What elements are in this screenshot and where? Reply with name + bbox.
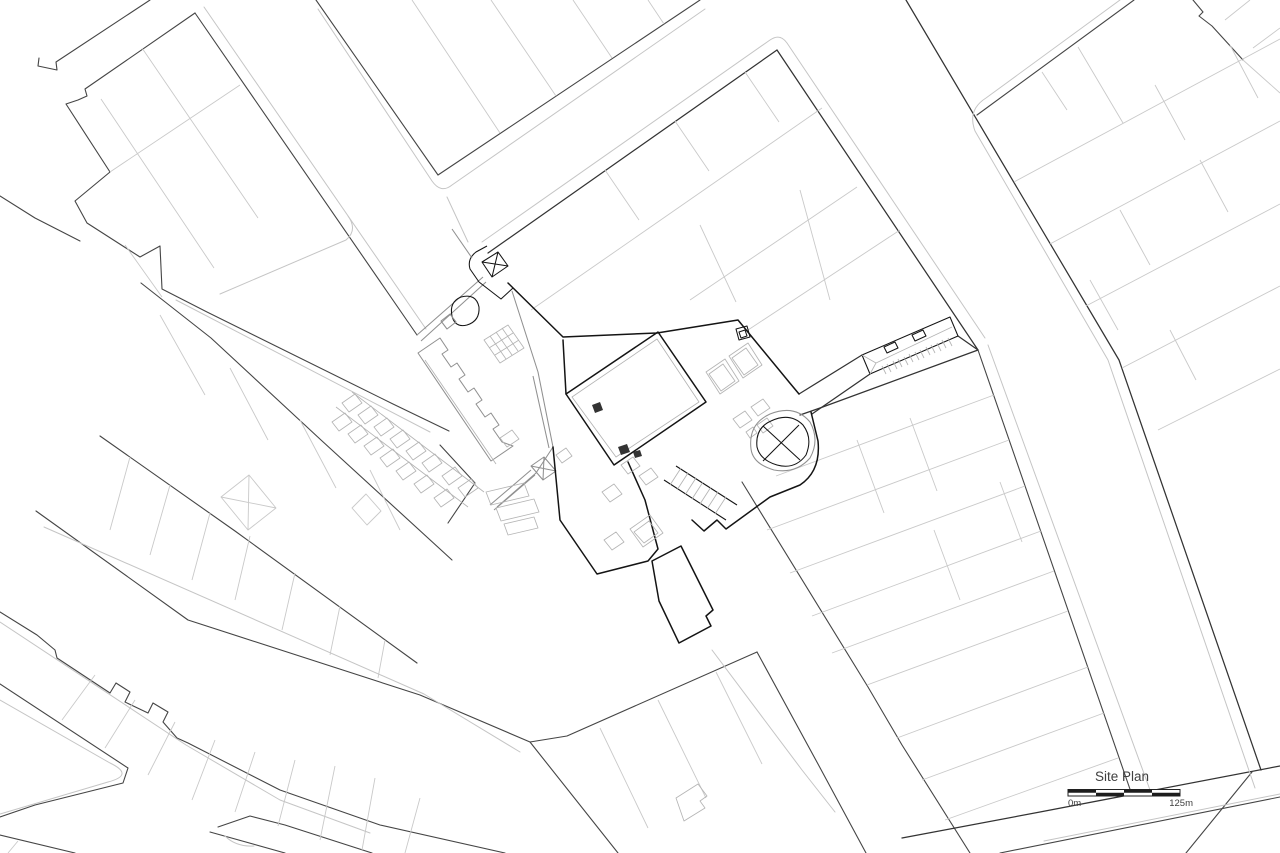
entrance-north-wall <box>452 229 472 258</box>
street-v-wedge <box>0 684 128 817</box>
small-rooflights <box>500 399 773 550</box>
block-b-lots <box>110 457 385 678</box>
roof-plant-units <box>592 402 642 458</box>
long-building-street-link <box>958 336 978 350</box>
courtyard-building-inner <box>425 360 496 464</box>
block-j-lots <box>600 672 762 828</box>
block-g-ne-edge <box>978 350 1132 795</box>
site-plan-page: Site Plan 0m 125m <box>0 0 1280 853</box>
lower-entrance-benches <box>486 483 539 535</box>
stair-steps <box>670 468 726 514</box>
long-roof-outline <box>862 317 958 374</box>
scale-end-label: 125m <box>1169 798 1193 809</box>
block-d-lots <box>531 72 900 330</box>
street-br-south-edge <box>1000 797 1280 853</box>
block-f2-edge <box>1193 0 1243 60</box>
block-d-nw-edge <box>488 50 777 253</box>
site-main-building <box>500 283 818 643</box>
street-s-south-edge <box>141 283 452 560</box>
block-c-triangle <box>316 0 700 175</box>
block-b1-bottom-edge <box>100 436 417 663</box>
curb-street-u-west <box>204 7 426 329</box>
curb-entrance-t <box>447 197 468 242</box>
grid-rooflight <box>484 325 524 363</box>
long-roof-ridge <box>862 327 952 374</box>
garden-sw-corner-wall <box>440 445 475 523</box>
entrance-rooflight-x <box>482 252 508 277</box>
curb-street-s <box>176 300 430 432</box>
lower-rooflight-x <box>531 457 556 480</box>
block-g-west-edge <box>742 482 970 853</box>
block-a-lots <box>101 48 258 297</box>
block-g-nw-edge <box>800 350 978 415</box>
curb-v-wedge <box>0 700 122 814</box>
block-h-lots <box>62 675 420 853</box>
garden-planter-row <box>332 394 478 507</box>
notched-south-structure <box>676 784 707 821</box>
curb-wide-street <box>44 527 520 752</box>
street-h-branch <box>218 816 372 853</box>
block-f2-lots <box>1225 0 1280 93</box>
block-west-edge <box>0 196 80 241</box>
block-j-top-edge <box>530 652 757 742</box>
central-room <box>566 332 706 465</box>
south-stub <box>652 546 713 643</box>
site-garden <box>332 229 572 535</box>
scale-start-label: 0m <box>1068 798 1081 809</box>
south-wing <box>553 447 658 574</box>
curb-street-u-junction <box>220 216 353 294</box>
site-plan-title: Site Plan <box>1095 769 1149 784</box>
block-d-ne-edge <box>777 50 978 350</box>
site-plan-canvas: Site Plan 0m 125m <box>0 0 1280 853</box>
block-topleft-jag-edge <box>38 0 150 70</box>
block-j-west-edge <box>530 742 618 853</box>
curb-street-r-east <box>973 0 1255 788</box>
block-j-ne-edge <box>757 652 866 853</box>
street-h-branch2 <box>210 832 285 853</box>
curb-street-t-ne <box>482 37 985 338</box>
block-c-lots <box>412 0 664 133</box>
block-a-outline <box>66 13 449 431</box>
block-f-lots <box>1014 39 1280 430</box>
curb-south-street <box>712 650 835 812</box>
garden-path-edges <box>336 392 484 507</box>
lane-to-long-building-n <box>799 355 862 394</box>
central-room-inner <box>572 339 699 457</box>
block-i-lots <box>8 841 18 853</box>
block-f-nw-edge <box>977 0 1134 115</box>
block-b1-x-plot <box>221 475 276 530</box>
round-skylight-x <box>757 417 809 466</box>
west-wall <box>563 340 566 394</box>
block-b1-square-plot <box>352 494 381 525</box>
courtyard-building-jagged <box>418 338 513 461</box>
street-br-north-edge <box>902 766 1280 838</box>
yard-small-square <box>556 448 572 463</box>
main-north-outline <box>508 283 799 394</box>
long-roof-building <box>862 317 958 374</box>
street-r-below <box>1186 772 1252 853</box>
stair-walls <box>664 466 737 520</box>
block-i-edge <box>0 835 75 853</box>
city-blocks-layer <box>0 0 1280 853</box>
